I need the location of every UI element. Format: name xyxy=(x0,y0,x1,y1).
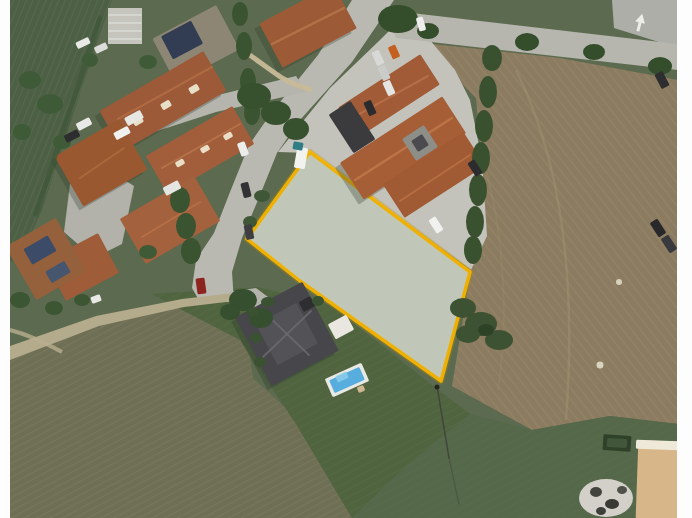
hedge xyxy=(469,174,487,206)
hedge xyxy=(176,213,196,239)
tree xyxy=(378,5,418,33)
truck-cab xyxy=(292,141,303,151)
hay-bale xyxy=(597,362,604,369)
page-margin-right xyxy=(677,0,692,518)
gravel-spot xyxy=(605,499,619,509)
hedge xyxy=(246,307,258,317)
tree xyxy=(19,71,41,89)
bush xyxy=(456,325,480,343)
bush xyxy=(10,292,30,308)
page-margin-left xyxy=(0,0,10,518)
gravel-spot xyxy=(617,486,627,494)
gravel-spot xyxy=(590,487,602,497)
bush xyxy=(261,297,275,307)
tree xyxy=(515,33,539,51)
gravel-patch xyxy=(579,479,633,517)
hedge xyxy=(482,45,502,71)
tan-building-edge xyxy=(636,440,680,451)
tree xyxy=(283,118,309,140)
hedge xyxy=(250,333,262,343)
tan-building xyxy=(636,440,681,518)
tree xyxy=(82,53,98,67)
hedge xyxy=(475,110,493,142)
bush xyxy=(312,296,324,306)
tree xyxy=(13,124,31,140)
hay-bale xyxy=(616,279,622,285)
tree xyxy=(261,101,291,125)
tree xyxy=(37,94,63,114)
hedge xyxy=(466,206,484,238)
tree xyxy=(583,44,605,60)
hedge xyxy=(181,238,201,264)
bush xyxy=(74,294,90,306)
hedge xyxy=(479,76,497,108)
utility-pole xyxy=(435,385,440,390)
tree xyxy=(139,55,157,69)
bush xyxy=(478,324,494,336)
hedge xyxy=(464,236,482,264)
gravel-spot xyxy=(596,507,606,515)
bush xyxy=(254,190,270,202)
tree xyxy=(139,245,157,259)
map-stage xyxy=(0,0,692,518)
garden-frame-inner xyxy=(607,438,628,448)
hedge xyxy=(236,32,252,60)
hedge xyxy=(254,357,266,367)
hedge xyxy=(232,2,248,26)
bush xyxy=(45,301,63,315)
satellite-map-canvas[interactable] xyxy=(0,0,692,518)
tree xyxy=(220,304,240,320)
